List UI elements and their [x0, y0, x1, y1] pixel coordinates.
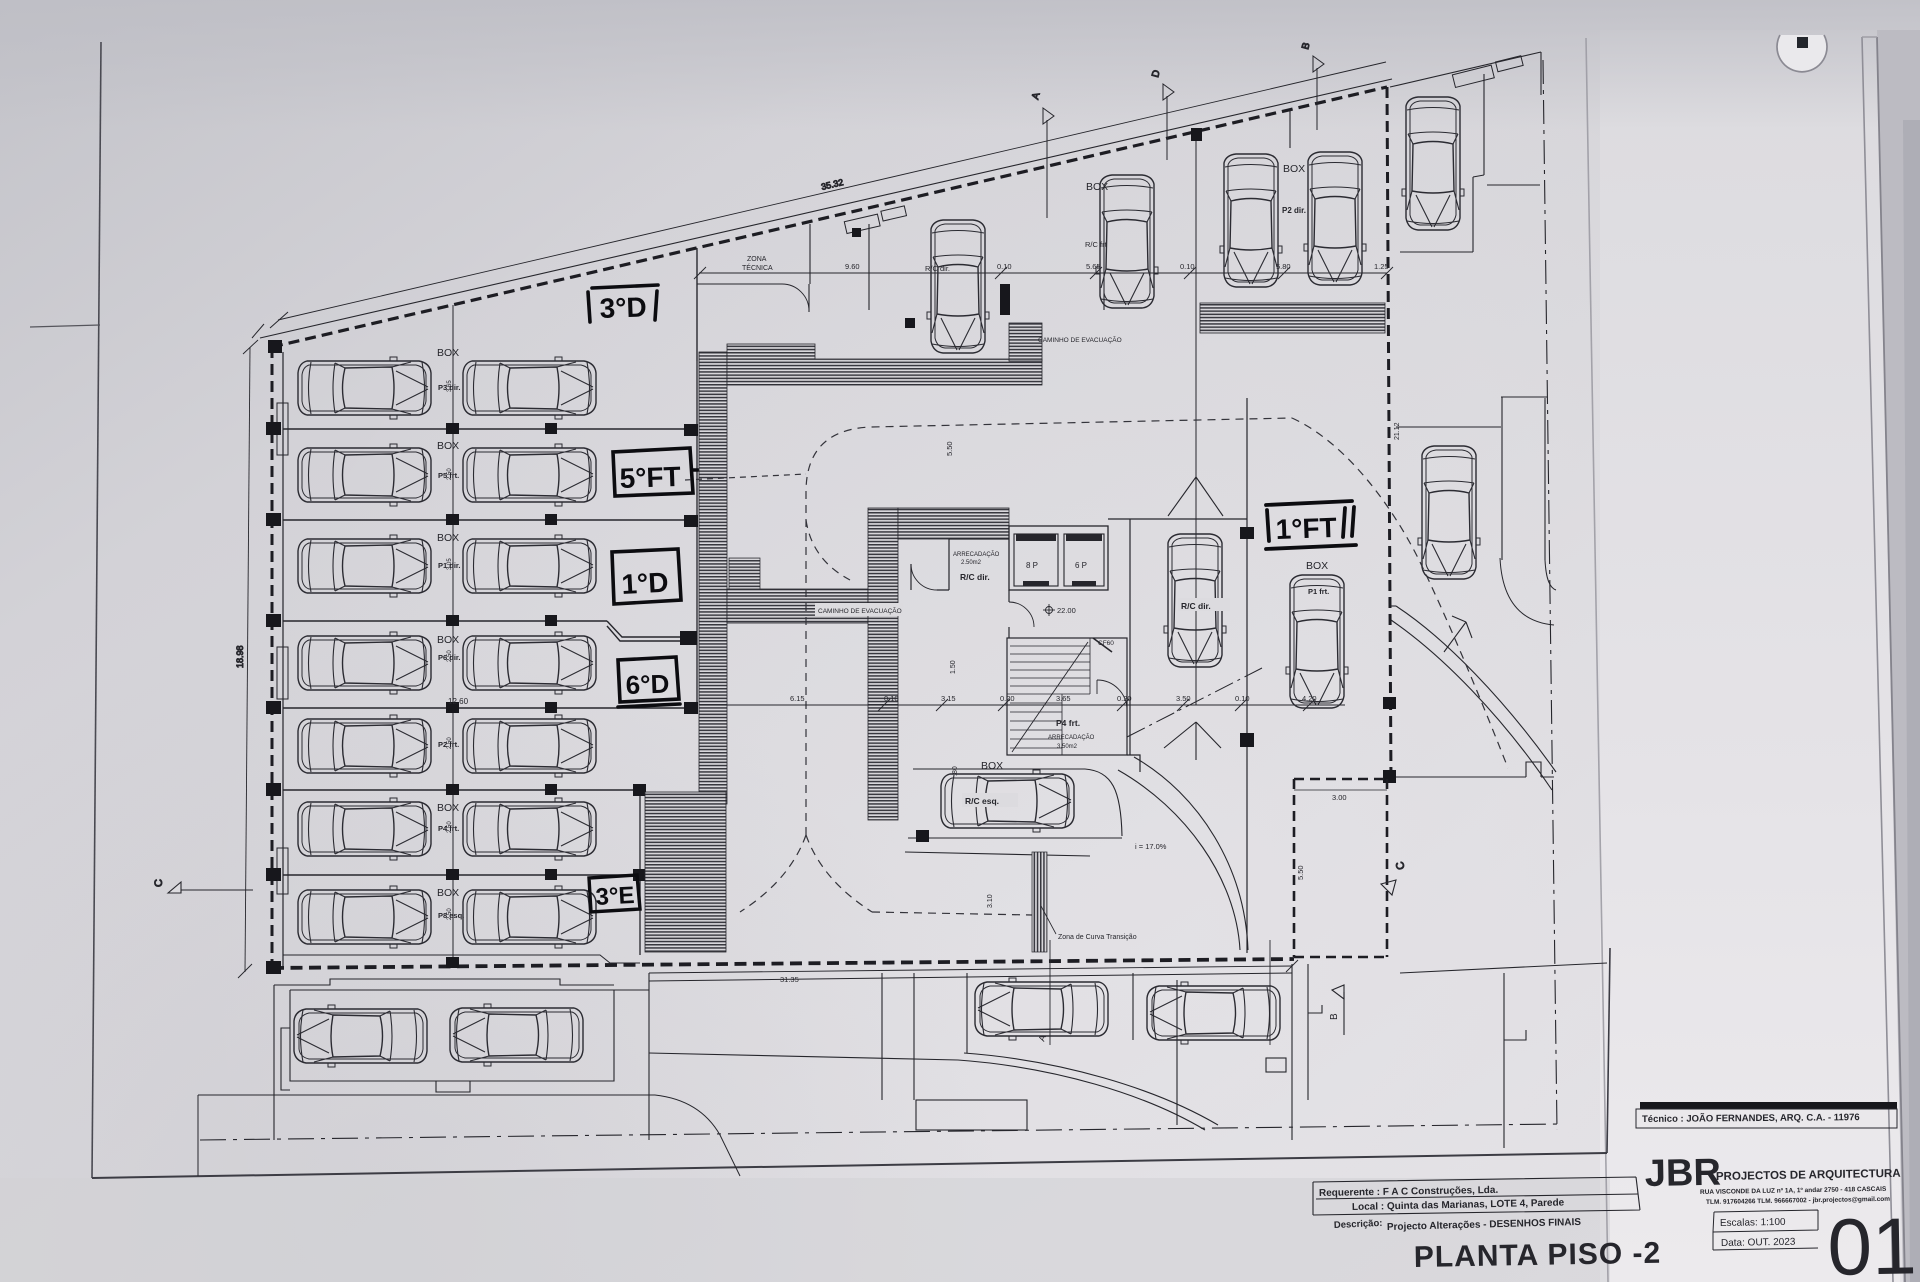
svg-text:0.10: 0.10 [1180, 262, 1195, 271]
svg-text:CAMINHO DE EVACUAÇÃO: CAMINHO DE EVACUAÇÃO [818, 606, 902, 615]
svg-text:2.50m2: 2.50m2 [961, 560, 982, 566]
svg-text:BOX: BOX [1283, 163, 1305, 175]
svg-text:2.50: 2.50 [447, 468, 453, 480]
svg-text:9.60: 9.60 [845, 262, 860, 271]
svg-text:BOX: BOX [437, 440, 459, 452]
svg-text:21.12: 21.12 [1394, 422, 1401, 440]
svg-text:5.50: 5.50 [945, 441, 954, 456]
svg-text:8 P: 8 P [1026, 561, 1038, 570]
svg-text:0.20: 0.20 [1117, 694, 1132, 703]
svg-text:5°FT: 5°FT [619, 461, 681, 494]
svg-text:3.10: 3.10 [987, 894, 994, 908]
svg-text:R/C dir.: R/C dir. [960, 572, 990, 582]
svg-text:1.50: 1.50 [950, 660, 957, 674]
svg-text:BOX: BOX [437, 634, 459, 646]
svg-text:12.60: 12.60 [448, 697, 469, 706]
svg-text:0.10: 0.10 [997, 262, 1012, 271]
svg-text:6 P: 6 P [1075, 561, 1087, 570]
svg-text:3.65: 3.65 [1056, 694, 1071, 703]
svg-text:18.98: 18.98 [235, 645, 245, 668]
svg-text:6°D: 6°D [625, 668, 670, 700]
svg-text:0.10: 0.10 [884, 694, 899, 703]
svg-text:3°D: 3°D [599, 291, 647, 324]
svg-text:01: 01 [1827, 1201, 1918, 1282]
svg-text:P4 frt.: P4 frt. [1056, 718, 1080, 728]
svg-text:BOX: BOX [1086, 181, 1108, 193]
svg-text:Descrição:: Descrição: [1334, 1218, 1383, 1231]
svg-text:Escalas: 1:100: Escalas: 1:100 [1720, 1217, 1786, 1229]
svg-text:Zona de Curva Transição: Zona de Curva Transição [1058, 934, 1137, 941]
svg-text:ARRECADAÇÃO: ARRECADAÇÃO [1048, 734, 1095, 741]
svg-text:3.15: 3.15 [941, 694, 956, 703]
svg-text:BOX: BOX [1306, 560, 1328, 572]
svg-text:BOX: BOX [437, 347, 459, 359]
svg-text:ZONA: ZONA [747, 256, 767, 263]
svg-text:R/C esq.: R/C esq. [965, 796, 999, 806]
svg-text:CF60: CF60 [1098, 640, 1114, 647]
svg-text:R/C frt: R/C frt [1085, 240, 1108, 249]
svg-text:TÉCNICA: TÉCNICA [742, 263, 773, 272]
svg-text:6.15: 6.15 [790, 694, 805, 703]
svg-text:3°E: 3°E [595, 882, 635, 911]
svg-text:C: C [153, 879, 165, 887]
svg-text:3.65: 3.65 [447, 380, 453, 392]
svg-text:2.50: 2.50 [447, 650, 453, 662]
svg-text:R/C dir.: R/C dir. [1181, 601, 1211, 611]
svg-text:P1 frt.: P1 frt. [1308, 587, 1329, 596]
svg-text:2.50: 2.50 [447, 821, 453, 833]
svg-text:0.20: 0.20 [1000, 694, 1015, 703]
svg-text:22.00: 22.00 [1057, 606, 1076, 615]
svg-text:Técnico : JOÃO FERNANDES, ARQ.: Técnico : JOÃO FERNANDES, ARQ. C.A. - 11… [1642, 1112, 1860, 1125]
svg-text:1°D: 1°D [621, 567, 670, 600]
svg-text:B: B [1329, 1013, 1340, 1020]
svg-text:PLANTA PISO -2: PLANTA PISO -2 [1414, 1237, 1662, 1274]
svg-text:3.50: 3.50 [1176, 694, 1191, 703]
svg-text:BOX: BOX [437, 802, 459, 814]
svg-text:BOX: BOX [981, 760, 1003, 772]
svg-text:3.00: 3.00 [1332, 793, 1347, 802]
svg-text:31.35: 31.35 [780, 975, 799, 984]
svg-text:BOX: BOX [437, 532, 459, 544]
svg-text:i = 17.0%: i = 17.0% [1135, 842, 1167, 851]
svg-text:3.50m2: 3.50m2 [1057, 744, 1078, 750]
svg-text:P2 dir.: P2 dir. [1282, 206, 1306, 215]
svg-text:1.25: 1.25 [1374, 262, 1389, 271]
svg-text:ARRECADAÇÃO: ARRECADAÇÃO [953, 551, 1000, 558]
svg-text:1°FT: 1°FT [1275, 512, 1337, 545]
svg-text:5.50: 5.50 [1296, 865, 1305, 880]
svg-text:2.50: 2.50 [447, 737, 453, 749]
svg-text:2.50: 2.50 [447, 908, 453, 920]
svg-text:Data: OUT. 2023: Data: OUT. 2023 [1721, 1237, 1796, 1249]
svg-text:CAMINHO DE EVACUAÇÃO: CAMINHO DE EVACUAÇÃO [1038, 335, 1122, 344]
svg-text:3.05: 3.05 [447, 558, 453, 570]
svg-text:BOX: BOX [437, 887, 459, 899]
